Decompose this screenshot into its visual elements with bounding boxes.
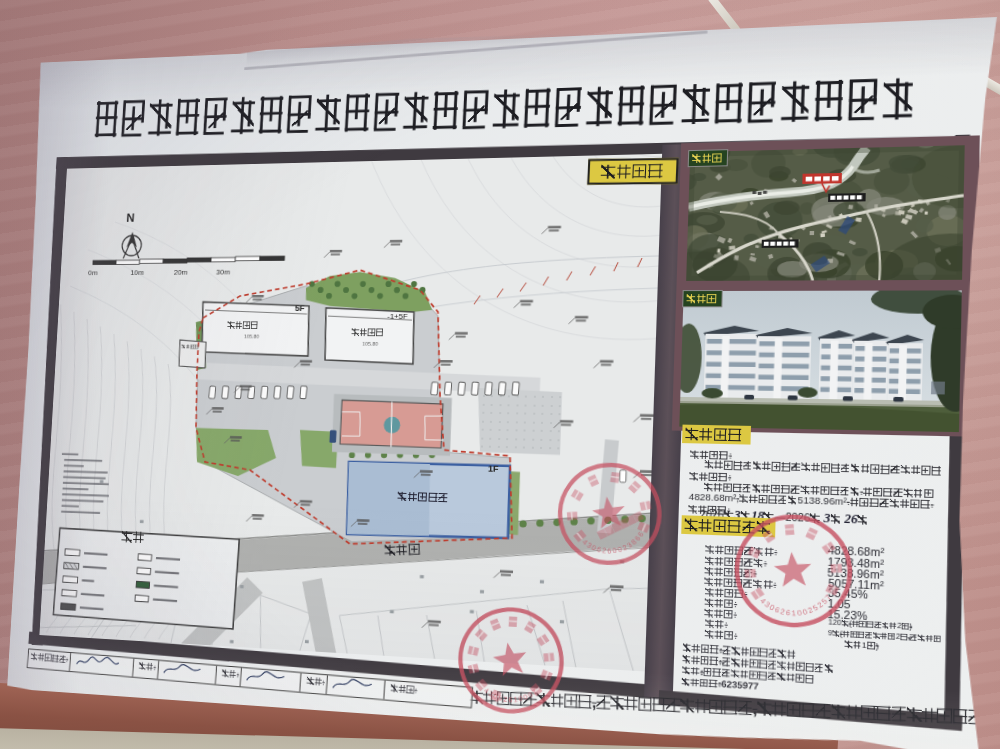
svg-text:43062610007: 43062610007 (482, 679, 541, 707)
